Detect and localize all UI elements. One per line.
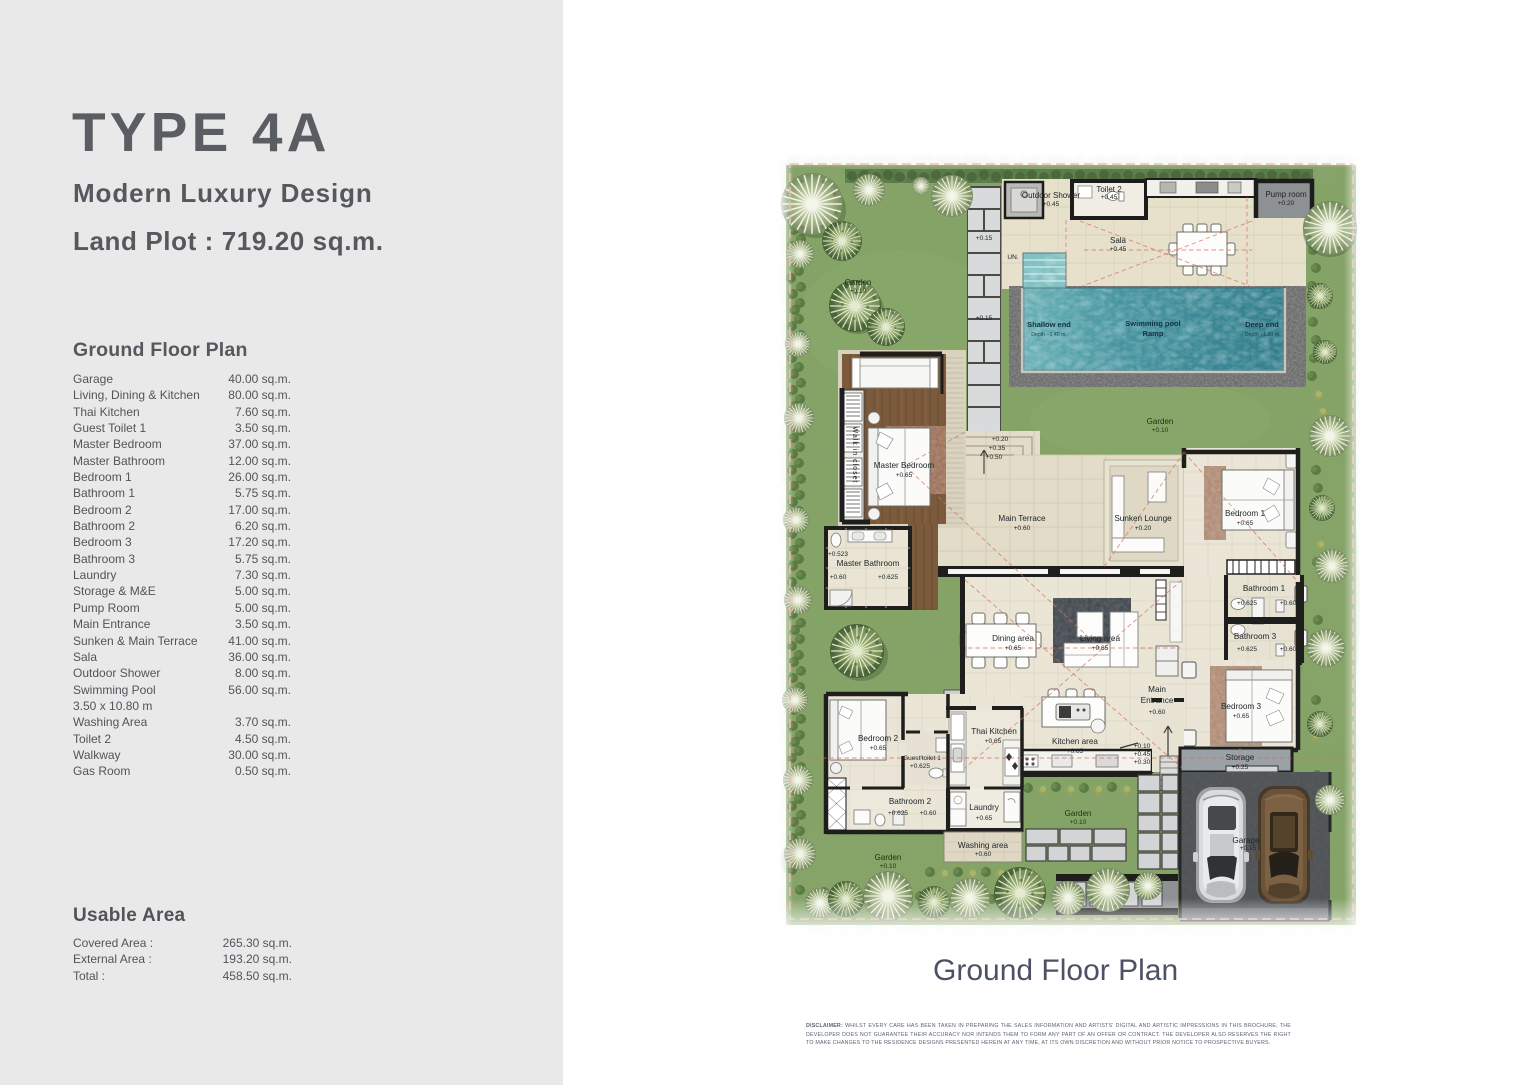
svg-text:+0.65: +0.65 bbox=[870, 745, 887, 752]
svg-text:Bathroom 3: Bathroom 3 bbox=[1234, 632, 1277, 641]
svg-text:+0.625: +0.625 bbox=[878, 574, 898, 581]
svg-text:Sunken Lounge: Sunken Lounge bbox=[1114, 514, 1172, 523]
svg-text:Laundry: Laundry bbox=[969, 803, 999, 812]
svg-text:Main: Main bbox=[1148, 685, 1166, 694]
svg-text:Depth −1.80 m: Depth −1.80 m bbox=[1245, 332, 1279, 338]
svg-text:+0.10: +0.10 bbox=[1134, 743, 1151, 750]
svg-text:Thai Kitchen: Thai Kitchen bbox=[971, 727, 1017, 736]
svg-text:Garden: Garden bbox=[845, 278, 872, 287]
svg-text:+0.25: +0.25 bbox=[1232, 764, 1249, 771]
svg-text:Living area: Living area bbox=[1080, 634, 1121, 643]
svg-text:Pump room: Pump room bbox=[1265, 190, 1307, 199]
svg-text:Bedroom 1: Bedroom 1 bbox=[1225, 509, 1265, 518]
svg-text:Deep end: Deep end bbox=[1245, 320, 1279, 329]
svg-text:Toilet 2: Toilet 2 bbox=[1096, 185, 1122, 194]
svg-text:Garage: Garage bbox=[1232, 836, 1260, 845]
svg-text:+0.65: +0.65 bbox=[985, 738, 1002, 745]
svg-text:Outdoor Shower: Outdoor Shower bbox=[1022, 191, 1081, 200]
svg-text:Master Bathroom: Master Bathroom bbox=[837, 559, 900, 568]
svg-text:Bathroom 1: Bathroom 1 bbox=[1243, 584, 1286, 593]
svg-text:+0.45: +0.45 bbox=[1101, 194, 1118, 201]
svg-text:+0.523: +0.523 bbox=[828, 551, 848, 558]
svg-text:+0.45: +0.45 bbox=[1110, 246, 1127, 253]
svg-text:+0.65: +0.65 bbox=[1005, 645, 1022, 652]
svg-text:+0.60: +0.60 bbox=[920, 810, 937, 817]
svg-text:+0.20: +0.20 bbox=[1278, 200, 1295, 207]
svg-text:+0.60: +0.60 bbox=[830, 574, 847, 581]
svg-text:Bedroom 3: Bedroom 3 bbox=[1221, 702, 1261, 711]
svg-text:Master Bedroom: Master Bedroom bbox=[874, 461, 935, 470]
svg-text:Dining area: Dining area bbox=[992, 634, 1034, 643]
svg-text:Garden: Garden bbox=[1065, 809, 1092, 818]
svg-text:+0.15: +0.15 bbox=[976, 315, 993, 322]
svg-text:+0.20: +0.20 bbox=[992, 436, 1009, 443]
svg-text:Kitchen area: Kitchen area bbox=[1052, 737, 1098, 746]
svg-text:+0.65: +0.65 bbox=[976, 815, 993, 822]
svg-text:+0.65: +0.65 bbox=[1233, 713, 1250, 720]
svg-text:+0.60: +0.60 bbox=[975, 851, 992, 858]
svg-text:+0.60: +0.60 bbox=[1280, 600, 1297, 607]
svg-text:+0.10: +0.10 bbox=[850, 288, 867, 295]
svg-text:+0.60: +0.60 bbox=[1280, 646, 1297, 653]
svg-text:+0.30: +0.30 bbox=[1134, 759, 1151, 766]
svg-text:+0.10: +0.10 bbox=[880, 863, 897, 870]
svg-text:Guest'toilet 1: Guest'toilet 1 bbox=[903, 755, 941, 762]
svg-text:+0.65: +0.65 bbox=[1237, 520, 1254, 527]
svg-text:Sala: Sala bbox=[1110, 236, 1127, 245]
svg-text:+0.45: +0.45 bbox=[1043, 201, 1060, 208]
svg-text:+0.65: +0.65 bbox=[896, 472, 913, 479]
svg-text:+0.10: +0.10 bbox=[1152, 427, 1169, 434]
svg-text:Walk in closet: Walk in closet bbox=[851, 427, 858, 484]
svg-text:Entrance: Entrance bbox=[1141, 696, 1174, 705]
svg-text:+0.65: +0.65 bbox=[1092, 645, 1109, 652]
svg-text:+0.20: +0.20 bbox=[1135, 525, 1152, 532]
svg-text:+0.10: +0.10 bbox=[1070, 819, 1087, 826]
svg-text:+0.15: +0.15 bbox=[976, 235, 993, 242]
svg-text:+0.625: +0.625 bbox=[888, 810, 908, 817]
svg-text:+0.50: +0.50 bbox=[986, 454, 1003, 461]
svg-text:Swimming pool: Swimming pool bbox=[1125, 319, 1180, 328]
svg-text:Shallow end: Shallow end bbox=[1027, 320, 1071, 329]
svg-text:+0.45: +0.45 bbox=[1134, 751, 1151, 758]
svg-text:Bedroom 2: Bedroom 2 bbox=[858, 734, 898, 743]
svg-text:Depth −1.40 m.: Depth −1.40 m. bbox=[1031, 332, 1067, 338]
svg-text:UN.: UN. bbox=[1007, 254, 1018, 261]
svg-text:+0.625: +0.625 bbox=[910, 763, 930, 770]
svg-text:Bathroom 2: Bathroom 2 bbox=[889, 797, 932, 806]
svg-text:+0.625: +0.625 bbox=[1237, 646, 1257, 653]
svg-text:Main Terrace: Main Terrace bbox=[998, 514, 1046, 523]
svg-text:+0.60: +0.60 bbox=[1014, 525, 1031, 532]
svg-text:+0.65: +0.65 bbox=[1067, 748, 1084, 755]
svg-text:Garden: Garden bbox=[875, 853, 902, 862]
svg-text:Ramp: Ramp bbox=[1143, 329, 1164, 338]
svg-text:+0.625: +0.625 bbox=[1237, 600, 1257, 607]
svg-text:+0.15: +0.15 bbox=[1240, 845, 1257, 852]
svg-text:+0.60: +0.60 bbox=[1149, 709, 1166, 716]
svg-text:Garden: Garden bbox=[1147, 417, 1174, 426]
svg-text:Storage: Storage bbox=[1226, 753, 1255, 762]
svg-text:+0.35: +0.35 bbox=[989, 445, 1006, 452]
svg-text:Washing area: Washing area bbox=[958, 841, 1009, 850]
